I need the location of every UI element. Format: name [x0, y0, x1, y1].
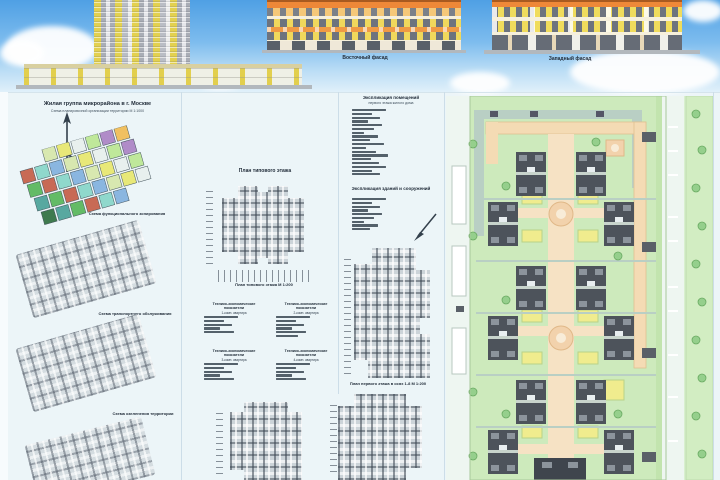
landuse-zone-cell [114, 157, 130, 173]
text-line-bar [204, 316, 238, 318]
ground-line [484, 50, 700, 54]
section-caption: План первого этажа в осях 1-8 М 1:200 [336, 382, 440, 387]
garage-block [456, 306, 464, 312]
text-line-bar [204, 324, 232, 326]
column-divider [444, 92, 445, 480]
landuse-zone-cell [48, 191, 64, 207]
board-margin [0, 92, 8, 480]
text-line-bar [276, 331, 306, 333]
central-alley [548, 134, 574, 480]
board-edge [0, 92, 720, 93]
text-line-bar [276, 316, 310, 318]
access-road [486, 122, 646, 134]
dimension-string [330, 400, 337, 472]
text-line-bar [352, 213, 382, 215]
perimeter-walkway [474, 110, 484, 236]
garage-block [642, 132, 656, 142]
landuse-zone-cell [41, 209, 57, 225]
plaza-center [556, 209, 566, 219]
fountain [611, 144, 619, 152]
text-line-bar [276, 327, 292, 329]
landuse-zone-cell [85, 134, 101, 150]
text-line-bar [352, 128, 374, 130]
spec-table-title: Технико-экономические показатели [276, 302, 336, 311]
building-footprint [488, 316, 518, 360]
text-line-bar [352, 139, 370, 141]
text-line-bar [352, 158, 371, 160]
landuse-zone-cell [20, 168, 36, 184]
spec-table-title: Технико-экономические показатели [204, 349, 264, 358]
landuse-zone-cell [113, 188, 129, 204]
text-line-bar [276, 367, 296, 369]
column-divider [181, 92, 182, 480]
text-line-bar [204, 371, 232, 373]
text-line-bar [352, 221, 364, 223]
ground-line [262, 50, 466, 53]
text-line-bar [352, 202, 372, 204]
landuse-zone-cell [70, 169, 86, 185]
text-line-bar [276, 324, 304, 326]
landuse-zone-cell [99, 161, 115, 177]
sports-ground [604, 380, 624, 400]
text-line-bar [352, 170, 372, 172]
spec-table-subtitle: 3-комн. квартира [204, 358, 264, 362]
building-footprint [488, 430, 518, 474]
landuse-zone-cell [121, 139, 137, 155]
text-line-bar [352, 224, 378, 226]
text-line-bar [276, 335, 298, 337]
text-line-bar [352, 143, 384, 145]
spec-table: Технико-экономические показатели 4-комн.… [276, 349, 336, 382]
landuse-zone-cell [55, 204, 71, 220]
sheet-title: Жилая группа микрорайона в г. Москве [30, 101, 165, 107]
cloud [0, 40, 44, 66]
dimension-string [344, 254, 351, 374]
playground [578, 352, 598, 364]
existing-building [452, 328, 466, 374]
ground-line [16, 85, 312, 89]
building-footprint [576, 266, 606, 310]
middle-floor [492, 21, 682, 32]
landuse-zone-cell [114, 125, 130, 141]
text-line-bar [204, 367, 224, 369]
landuse-zone-cell [63, 155, 79, 171]
text-line-bar [352, 124, 382, 126]
landuse-zone-cell [49, 160, 65, 176]
text-line-bar [352, 206, 380, 208]
landuse-zone-cell [56, 142, 72, 158]
right-building-elevation [492, 0, 682, 50]
landuse-zone-cell [71, 138, 87, 154]
text-line-bar [352, 120, 368, 122]
spec-table-subtitle: 1-комн. квартира [204, 311, 264, 315]
text-line-bar [204, 331, 234, 333]
building-footprint [604, 202, 634, 246]
text-line-bar [276, 320, 296, 322]
garage-block [642, 348, 656, 358]
building-footprint [604, 430, 634, 474]
ground-floor-plan [230, 402, 302, 480]
landuse-zone-cell [56, 173, 72, 189]
text-line-bar [352, 132, 364, 134]
legend2-title: Экспликация зданий и сооружений [344, 186, 438, 191]
building-footprint [516, 152, 546, 196]
building-footprint [488, 202, 518, 246]
building-footprint [576, 152, 606, 196]
upper-floor [492, 7, 682, 17]
green-verge [656, 96, 662, 480]
elevation-caption: Восточный фасад [300, 56, 430, 62]
entrance-floor-plan [338, 394, 422, 480]
text-line-bar [204, 320, 224, 322]
cloud [683, 0, 720, 22]
text-line-bar [204, 378, 234, 380]
landuse-zone-cell [128, 152, 144, 168]
text-line-bar [352, 162, 379, 164]
floorplan-caption: План типового этажа М 1:200 [208, 283, 320, 288]
landuse-zone-cell [77, 183, 93, 199]
text-line-bar [276, 371, 304, 373]
landuse-zone-cell [34, 195, 50, 211]
playground [522, 230, 542, 242]
middle-building-elevation [267, 0, 461, 50]
building-footprint [516, 380, 546, 424]
existing-building [452, 166, 466, 224]
text-line-bar [276, 363, 310, 365]
existing-building [452, 246, 466, 296]
column-divider [713, 92, 714, 480]
landuse-zone-cell [106, 174, 122, 190]
landuse-zone-cell [34, 164, 50, 180]
text-line-bar [352, 154, 388, 156]
landuse-zone-cell [121, 170, 137, 186]
cloud [450, 72, 510, 94]
entrance-block [596, 111, 604, 117]
text-line-bar [352, 228, 370, 230]
text-line-bar [352, 109, 386, 111]
spec-table-subtitle: 2-комн. квартира [276, 311, 336, 315]
presentation-board: Восточный фасад Западный фасад Жилая гру… [0, 0, 720, 480]
landuse-zone-cell [99, 129, 115, 145]
block-section-plan [354, 248, 430, 378]
garage-block [642, 452, 656, 462]
text-line-bar [276, 378, 306, 380]
spec-table-title: Технико-экономические показатели [276, 349, 336, 358]
podium-elevation [24, 68, 302, 86]
text-line-bar [352, 135, 378, 137]
legend-items [352, 109, 432, 177]
spec-table-rows [276, 363, 336, 380]
landuse-zone-cell [78, 151, 94, 167]
typical-floor-plan [222, 186, 304, 264]
landuse-plan [13, 121, 163, 238]
landuse-zone-cell [107, 143, 123, 159]
text-line-bar [352, 147, 366, 149]
text-line-bar [352, 198, 386, 200]
landuse-zone-cell [63, 187, 79, 203]
cross-alley [506, 444, 616, 454]
text-line-bar [352, 209, 368, 211]
master-plan [446, 96, 713, 480]
site-improvement-plan [25, 416, 156, 480]
landuse-zone-cell [85, 165, 101, 181]
spec-table-title: Технико-экономические показатели [204, 302, 264, 311]
dimension-string [216, 410, 223, 474]
landuse-zone-cell [99, 192, 115, 208]
text-line-bar [204, 327, 220, 329]
spec-table: Технико-экономические показатели 1-комн.… [204, 302, 264, 335]
greenery-scheme-plan [15, 314, 156, 413]
text-line-bar [276, 374, 292, 376]
text-line-bar [204, 363, 238, 365]
landuse-zone-cell [27, 181, 43, 197]
text-line-bar [352, 151, 376, 153]
legend-subtitle: первого этажа жилого дома [344, 101, 438, 105]
legend-title: Экспликация помещений [344, 95, 438, 100]
spec-table: Технико-экономические показатели 3-комн.… [204, 349, 264, 382]
dimension-string [206, 190, 213, 264]
landuse-zone-cell [84, 196, 100, 212]
landuse-zone-cell [92, 178, 108, 194]
playground [578, 230, 598, 242]
landuse-zone-cell [92, 147, 108, 163]
spec-table-rows [276, 316, 336, 337]
garage-block [642, 242, 656, 252]
direction-arrow-icon [410, 210, 440, 244]
community-building-detail [542, 462, 552, 468]
greenery-caption: Схема озеленения территории [108, 412, 178, 417]
landuse-zone-cell [41, 177, 57, 193]
perimeter-walkway [474, 110, 642, 119]
spec-table-subtitle: 4-комн. квартира [276, 358, 336, 362]
spec-table-rows [204, 316, 264, 333]
landuse-caption: Схема функционального зонирования [76, 212, 178, 217]
upper-floor [267, 19, 461, 27]
floorplan-title: План типового этажа [195, 169, 335, 175]
text-line-bar [352, 217, 374, 219]
ground-floor [267, 41, 461, 50]
ground-floor [492, 35, 682, 50]
entrance-block [530, 111, 538, 117]
playground [522, 310, 542, 322]
landuse-zone-cell [135, 166, 151, 182]
text-line-bar [352, 113, 372, 115]
text-line-bar [352, 117, 380, 119]
playground [522, 352, 542, 364]
attic-floor [267, 8, 461, 16]
elevation-caption: Западный фасад [505, 57, 635, 63]
spec-table-rows [204, 363, 264, 380]
playground [578, 310, 598, 322]
text-line-bar [352, 173, 380, 175]
access-road [486, 122, 498, 164]
plaza-center [556, 333, 566, 343]
lower-floor [267, 32, 461, 40]
spec-table: Технико-экономические показатели 2-комн.… [276, 302, 336, 339]
text-line-bar [352, 166, 386, 168]
community-building-detail [568, 462, 578, 468]
building-footprint [604, 316, 634, 360]
entrance-block [490, 111, 498, 117]
building-footprint [576, 380, 606, 424]
building-footprint [516, 266, 546, 310]
landuse-zone-cell [42, 146, 58, 162]
community-building [534, 458, 586, 480]
text-line-bar [204, 374, 220, 376]
